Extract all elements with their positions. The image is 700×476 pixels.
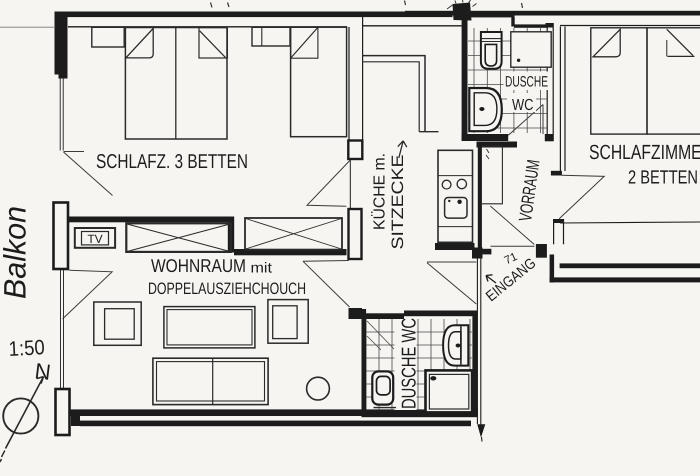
svg-text:SCHLAFZ. 3 BETTEN: SCHLAFZ. 3 BETTEN: [96, 151, 248, 173]
svg-text:VORRAUM: VORRAUM: [515, 158, 543, 222]
svg-text:WC: WC: [512, 97, 534, 114]
svg-text:SCHLAFZIMMER: SCHLAFZIMMER: [589, 141, 700, 164]
svg-text:DUSCHE WC: DUSCHE WC: [399, 318, 421, 409]
svg-text:1:50: 1:50: [8, 336, 45, 361]
svg-text:KÜCHE m.: KÜCHE m.: [371, 153, 389, 230]
svg-text:SITZECKE: SITZECKE: [389, 155, 407, 250]
svg-text:WOHNRAUM: WOHNRAUM: [151, 255, 246, 276]
svg-text:TV: TV: [87, 232, 102, 246]
svg-text:Balkon: Balkon: [0, 206, 33, 299]
svg-text:DOPPELAUSZIEHCHOUCH: DOPPELAUSZIEHCHOUCH: [148, 280, 306, 298]
svg-text:2 BETTEN: 2 BETTEN: [628, 168, 698, 189]
svg-text:mit: mit: [251, 261, 273, 277]
svg-text:N: N: [33, 358, 52, 385]
svg-text:DUSCHE: DUSCHE: [505, 74, 548, 91]
